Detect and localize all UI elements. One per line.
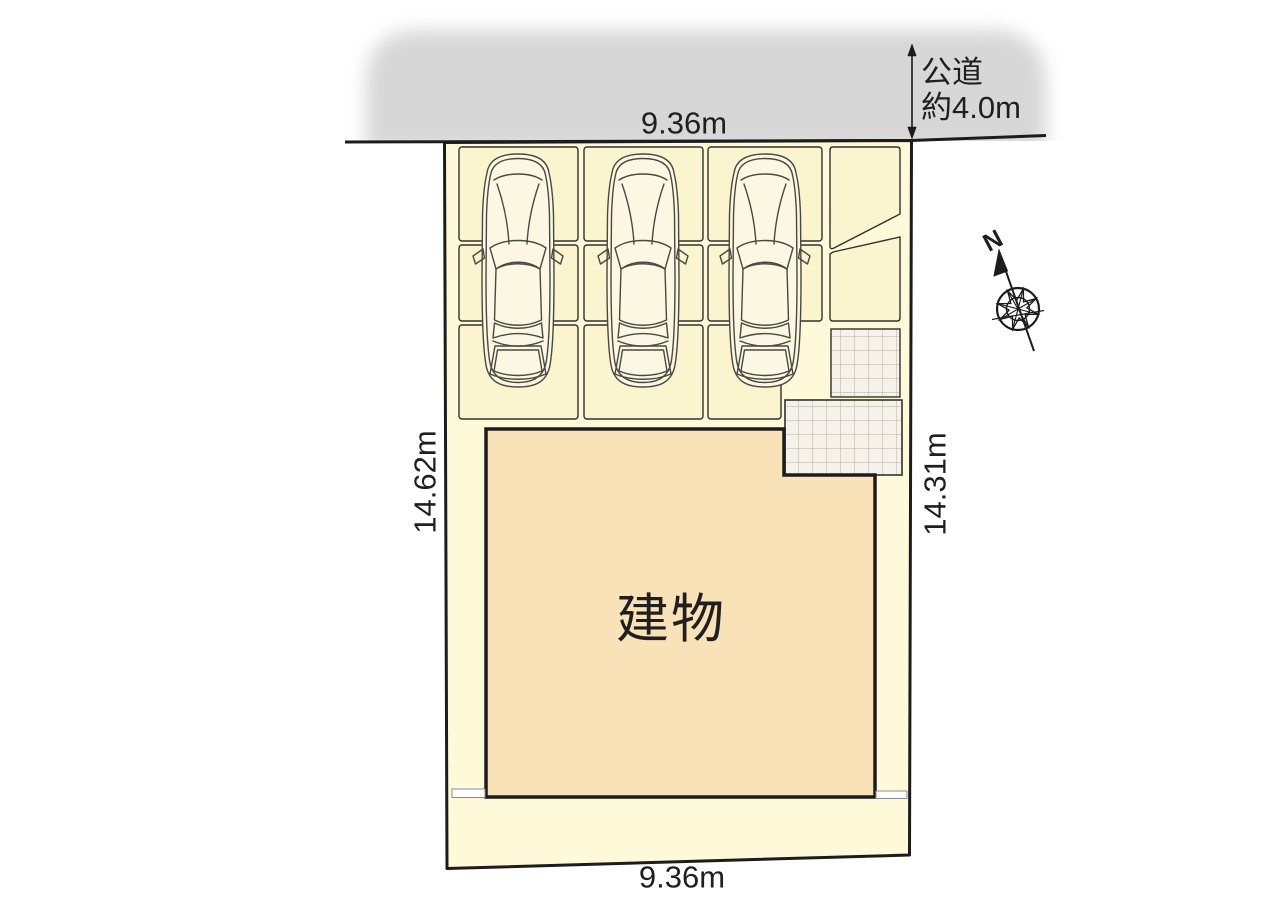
- building-label: 建物: [616, 592, 726, 648]
- dimension-top: 9.36m: [641, 108, 727, 141]
- car-icon: [473, 154, 563, 387]
- car-icon: [598, 154, 688, 387]
- road-label-line2: 約4.0m: [921, 90, 1021, 125]
- compass-rose-icon: [992, 250, 1044, 351]
- tile-area-lower: [785, 400, 902, 475]
- dimension-right: 14.31m: [920, 432, 953, 535]
- site-plan-page: 9.36m 9.36m 14.62m 14.31m 公道 約4.0m 建物 N: [0, 0, 1280, 924]
- dimension-left: 14.62m: [410, 430, 443, 533]
- road-label-line1: 公道: [921, 55, 1021, 90]
- dimension-bottom: 9.36m: [639, 862, 725, 895]
- tile-area-upper: [831, 329, 900, 397]
- step-strip-right: [876, 791, 907, 799]
- step-strip-left: [452, 789, 485, 798]
- car-icon: [720, 154, 810, 387]
- road-label: 公道 約4.0m: [921, 55, 1021, 125]
